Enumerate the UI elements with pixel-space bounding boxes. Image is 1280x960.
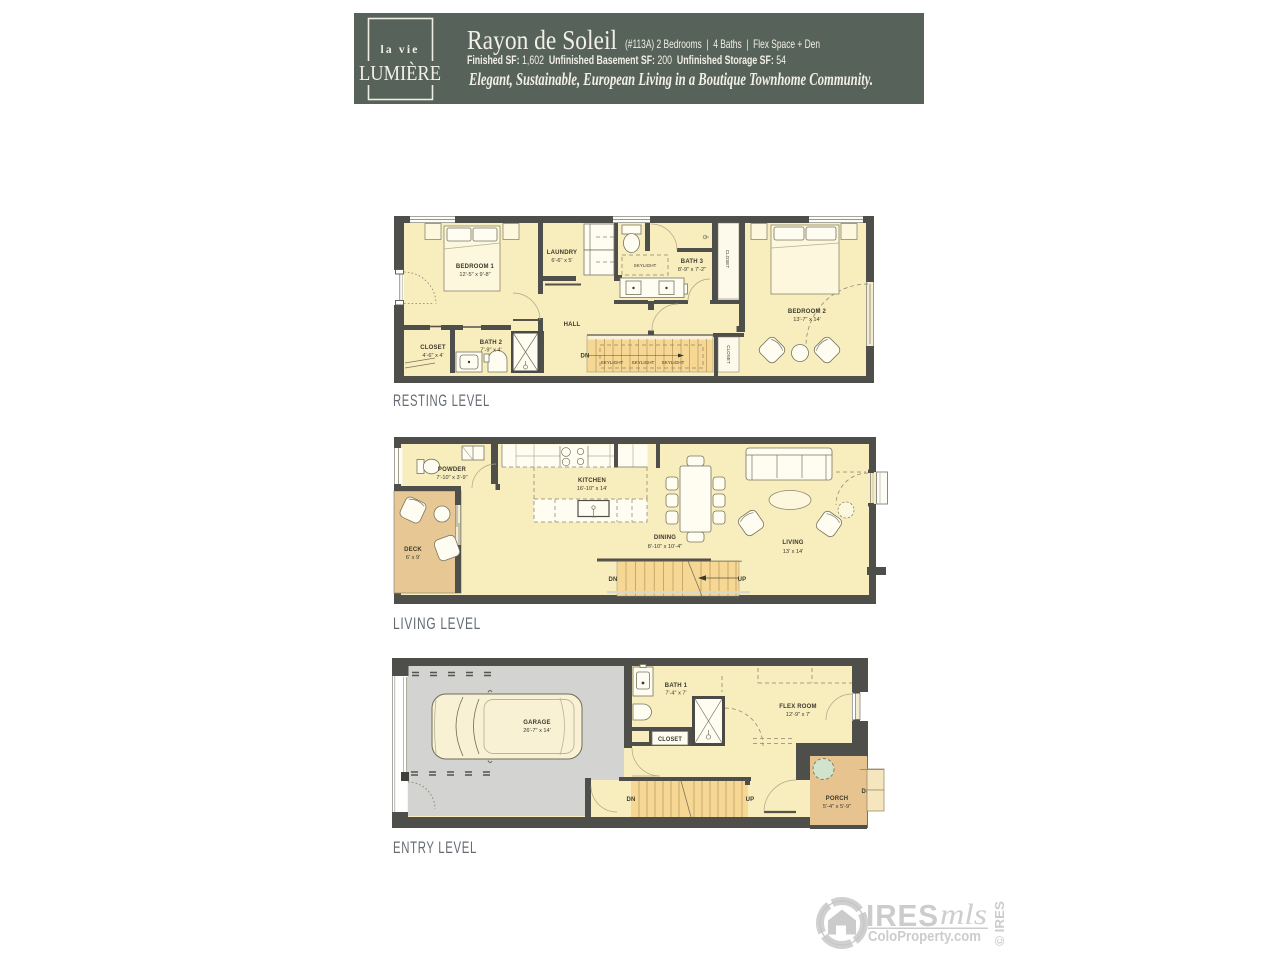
svg-text:HALL: HALL: [564, 322, 581, 328]
svg-text:FLEX ROOM: FLEX ROOM: [779, 704, 816, 710]
svg-text:la vie: la vie: [380, 44, 419, 56]
svg-text:BEDROOM 2: BEDROOM 2: [788, 309, 827, 315]
svg-text:KITCHEN: KITCHEN: [578, 478, 606, 484]
svg-text:POWDER: POWDER: [438, 467, 467, 473]
svg-text:Rayon de Soleil: Rayon de Soleil: [467, 25, 617, 55]
svg-text:5'-4" x 5'-9": 5'-4" x 5'-9": [823, 804, 851, 810]
svg-text:26'-7" x 14': 26'-7" x 14': [523, 728, 550, 734]
svg-text:CLOSET: CLOSET: [658, 737, 682, 743]
svg-text:mls: mls: [940, 898, 987, 931]
svg-text:CLOSET: CLOSET: [420, 345, 446, 351]
svg-text:ColoProperty.com: ColoProperty.com: [868, 929, 981, 945]
svg-text:16'-10" x 14': 16'-10" x 14': [577, 486, 608, 492]
svg-text:BATH 1: BATH 1: [665, 683, 688, 689]
svg-text:UP: UP: [738, 577, 747, 583]
svg-text:12'-5" x 9'-8": 12'-5" x 9'-8": [459, 272, 490, 278]
svg-text:6' x 9': 6' x 9': [406, 555, 420, 561]
svg-text:SKYLIGHT: SKYLIGHT: [662, 360, 685, 365]
svg-text:LIVING LEVEL: LIVING LEVEL: [393, 614, 481, 633]
svg-text:13'-7" x 14': 13'-7" x 14': [793, 317, 820, 323]
svg-text:GARAGE: GARAGE: [523, 720, 551, 726]
svg-text:LAUNDRY: LAUNDRY: [547, 250, 578, 256]
svg-text:7'-4" x 7': 7'-4" x 7': [665, 691, 686, 697]
svg-text:SKYLIGHT: SKYLIGHT: [634, 263, 657, 268]
svg-text:8'-9" x 7'-2": 8'-9" x 7'-2": [678, 267, 706, 273]
svg-text:7'-10" x 3'-9": 7'-10" x 3'-9": [436, 475, 467, 481]
svg-text:CLOSET: CLOSET: [726, 345, 731, 364]
svg-text:RESTING LEVEL: RESTING LEVEL: [393, 391, 490, 410]
svg-text:PORCH: PORCH: [826, 796, 849, 802]
svg-text:13' x 14': 13' x 14': [783, 549, 804, 555]
svg-text:LIVING: LIVING: [782, 540, 803, 546]
svg-text:DECK: DECK: [404, 547, 422, 553]
svg-text:UP: UP: [746, 797, 755, 803]
svg-text:BEDROOM 1: BEDROOM 1: [456, 264, 495, 270]
svg-text:BATH 3: BATH 3: [681, 259, 704, 265]
svg-text:© IRES: © IRES: [992, 901, 1007, 946]
svg-text:BATH 2: BATH 2: [480, 340, 503, 346]
svg-text:Elegant, Sustainable, European: Elegant, Sustainable, European Living in…: [468, 69, 873, 89]
svg-text:7'-9" x 4': 7'-9" x 4': [480, 348, 501, 354]
svg-text:12'-9" x 7': 12'-9" x 7': [786, 712, 810, 718]
svg-text:Finished SF: 1,602 Unfinished: Finished SF: 1,602 Unfinished Basement S…: [467, 55, 786, 67]
svg-text:DN: DN: [608, 577, 617, 583]
svg-text:8'-10" x 10'-4": 8'-10" x 10'-4": [648, 544, 682, 550]
svg-text:CLOSET: CLOSET: [725, 250, 730, 269]
svg-text:6'-6" x 5': 6'-6" x 5': [551, 258, 572, 264]
svg-text:DN: DN: [580, 354, 589, 360]
svg-text:DINING: DINING: [654, 535, 676, 541]
svg-text:(#113A) 2 Bedrooms | 4 Baths: (#113A) 2 Bedrooms | 4 Baths | Flex Spac…: [625, 37, 820, 51]
svg-text:ENTRY LEVEL: ENTRY LEVEL: [393, 838, 477, 857]
svg-text:SKYLIGHT: SKYLIGHT: [632, 360, 655, 365]
svg-text:LUMIÈRE: LUMIÈRE: [359, 61, 441, 85]
svg-text:SKYLIGHT: SKYLIGHT: [601, 360, 624, 365]
svg-text:DN: DN: [626, 797, 635, 803]
